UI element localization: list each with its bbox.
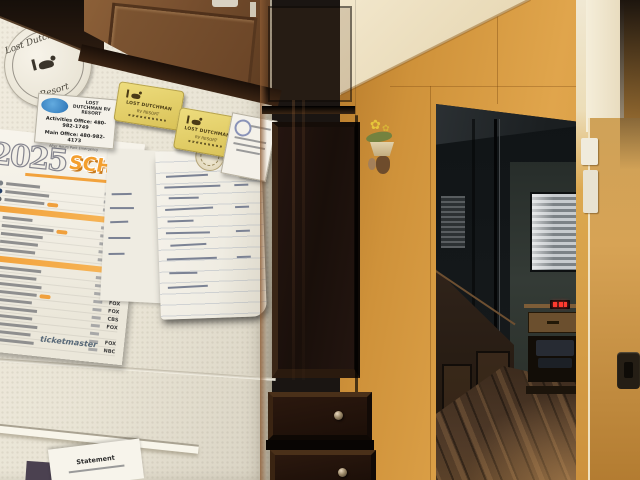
handwriting-line [109,253,125,255]
team-logo-icon [0,180,3,185]
opponent-name [0,337,34,344]
cabinet-handle [212,0,238,7]
handwriting-line [166,174,208,178]
door-latch [617,352,640,389]
resort-info-card: LOST DUTCHMAN RV RESORT Activities Offic… [34,93,118,150]
handwriting-line [165,206,213,210]
game-date [93,300,102,303]
handwriting-line [234,184,248,186]
doorway [436,104,586,480]
resort-oval-logo-icon [41,97,69,114]
cabinet-edge-highlight [260,0,267,480]
folded-towels [538,358,572,368]
nightstand-base [526,386,578,394]
handwriting-line [110,207,134,209]
nightstand [524,304,580,396]
led-digit [553,302,557,307]
opponent-name [0,274,36,281]
cabinet-hinge [250,2,256,17]
card-line [236,149,260,156]
handwriting-line [167,257,217,260]
pantry-drawer [268,392,372,440]
handwriting-line [166,231,210,233]
light-switch [583,170,598,213]
drawer-gap [266,440,374,450]
drawer-knob [338,468,347,477]
tv-network: FOX [101,339,117,347]
door-top-edge [586,0,624,132]
folded-towels [536,340,574,356]
latch-keyhole [624,362,633,378]
prospector-icon [125,88,142,100]
team-logo-icon [0,196,2,201]
led-digit [564,302,567,307]
opponent-name [0,330,31,337]
handwriting-line [169,272,197,274]
opponent-name [0,322,37,329]
tv-network [102,334,117,336]
handwriting-line [170,243,206,246]
wall-corner-line [430,86,431,480]
game-date [92,316,101,319]
resort-name: LOST DUTCHMAN RV RESORT [70,99,114,118]
handwriting-line [168,285,208,289]
highlight-tag [56,229,67,234]
blinds-glare [532,194,580,270]
door-sheen [302,100,305,380]
statement-title: Statement [49,450,141,469]
handwriting-line [108,237,130,239]
opponent-name [0,248,35,254]
opponent-name [4,198,44,205]
opponent-name [0,298,32,304]
hanging-trinket [376,156,390,174]
led-digit [559,302,563,307]
prospector-icon [185,114,202,127]
pantry-drawer [270,450,376,480]
seal-icon [233,118,253,138]
opponent-name [0,290,37,297]
pantry-rail [262,106,356,114]
nightstand-shelf [528,336,576,382]
tv-network: NBC [100,347,116,355]
fridge-door-seam [0,358,276,381]
tv-network: FOX [102,323,118,331]
drawer-handle [547,321,559,324]
led-clock [550,300,570,309]
door-lock-plate [581,138,598,165]
pantry-tall-door [272,122,360,378]
opponent-name [6,182,40,188]
tv-network: FOX [104,308,120,316]
game-date [91,324,100,327]
wall-trim [390,86,580,87]
handwriting-line [236,230,250,232]
pantry-upper-door [268,6,352,102]
nightstand-drawer [528,312,578,333]
handwriting-line [112,193,132,195]
handwriting-line [237,256,251,258]
basket [370,142,394,156]
handwriting-line [110,221,128,223]
kitchen-hallway-photo: 2025SCHEDULE CBSFOXFOXNBCFOXCBSCBSFOXNBC… [0,0,640,480]
highlight-tag [47,202,58,207]
handwriting-line [168,220,194,222]
door-shadow-edge [620,0,640,170]
handwriting-line [169,197,199,199]
door-sheen [292,100,295,380]
hanging-trinket [368,158,376,170]
game-date [92,308,101,311]
handwriting-line [164,185,220,188]
game-date [90,332,99,335]
window-blinds-reflection [441,196,465,248]
window-blinds [530,192,582,272]
highlight-tag [39,294,50,299]
drawer-knob [334,411,343,420]
handwriting-line [235,206,249,208]
opponent-name [2,216,32,222]
tv-network: CBS [103,316,119,324]
wall-ornament: ✿ ✿ [364,122,406,188]
opponent-name [0,306,37,313]
opponent-name [0,314,32,321]
team-logo-icon [0,188,3,193]
